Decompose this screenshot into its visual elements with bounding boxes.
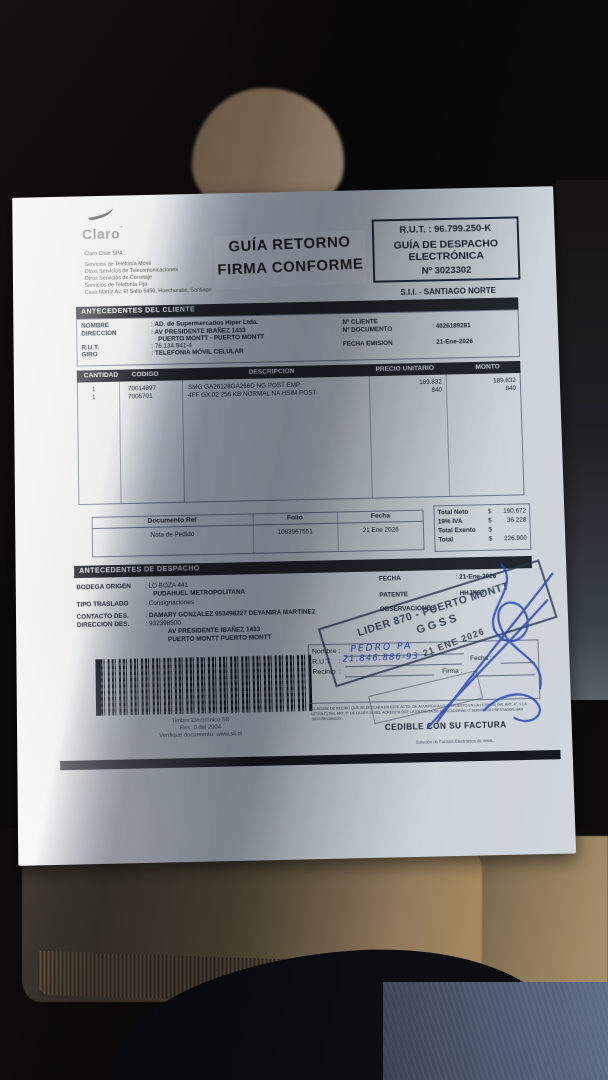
contacto-label: CONTACTO DES.: [77, 613, 129, 622]
doc-number: Nº 3023302: [375, 264, 518, 278]
col-monto: MONTO: [475, 363, 500, 371]
rut-box: R.U.T. : 96.799.250-K GUÍA DE DESPACHO E…: [372, 216, 521, 282]
n-cliente-label: Nº CLIENTE: [342, 318, 378, 326]
exento-label: Total Exento: [438, 527, 476, 535]
sii-office: S.I.I. - SANTIAGO NORTE: [383, 286, 513, 298]
n-documento-value: : 4026189281: [432, 322, 471, 330]
colon: :: [151, 343, 153, 350]
colon: :: [145, 583, 147, 590]
colon: :: [151, 329, 153, 336]
pen-mark: [87, 206, 114, 221]
direccion-des-value3: PUERTO MONTT PUERTO MONTT: [168, 634, 272, 644]
iva-label: 19% IVA: [438, 518, 463, 526]
firma-conforme-line2: FIRMA CONFORME: [215, 253, 367, 282]
client-nombre-label: NOMBRE: [81, 322, 109, 330]
document-content: Claro´ Claro Chile SPA. Servicios de Tel…: [12, 186, 576, 866]
bodega-value2: PUDAHUEL METROPOLITANA: [153, 589, 245, 598]
patente-label: PATENTE: [379, 591, 408, 599]
claro-logo-tick: ´: [120, 225, 124, 235]
claro-logo: Claro´: [82, 225, 124, 242]
row2-cantidad: 1: [92, 394, 96, 401]
fecha-emision-value: : 21-Ene-2026: [433, 338, 473, 346]
exento-sign: $: [488, 526, 492, 533]
col-descripcion: DESCRIPCION: [249, 368, 295, 377]
row1-codigo: 70014897: [128, 385, 156, 393]
total-label: Total: [438, 536, 453, 544]
footer-solution-note: Solución de Factura Electrónica de www..…: [416, 739, 496, 746]
row1-cantidad: 1: [92, 386, 96, 393]
contacto-value: : DAMARY GONZALEZ 953498227 DEYANIRA MAR…: [145, 608, 315, 619]
colon: :: [145, 620, 147, 627]
col-cantidad: CANTIDAD: [84, 372, 119, 380]
colon: :: [151, 350, 153, 357]
direccion-des-label: DIRECCION DES.: [77, 621, 129, 630]
colon: :: [432, 323, 434, 330]
company-line: Casa Matriz Av. El Salto 5450, Huechurab…: [85, 287, 212, 296]
tipo-label: TIPO TRASLADO: [76, 600, 128, 609]
claro-logo-text: Claro: [82, 226, 120, 243]
pdf417-barcode: [95, 655, 312, 716]
bodega-value1: : LO BOZA 441: [145, 582, 188, 590]
fine-print-line: SIDO RECIBIDOS.: [311, 717, 342, 722]
colon: :: [151, 321, 153, 328]
colon: :: [145, 600, 147, 607]
fecha-emision-label: FECHA EMISION: [343, 340, 393, 348]
row2-codigo: 7005701: [128, 393, 153, 401]
total-value: 226.900: [485, 535, 528, 543]
n-documento-label: Nº DOCUMENTO: [343, 326, 393, 334]
total-neto-label: Total Neto: [438, 509, 469, 517]
car-interior-photo: Claro´ Claro Chile SPA. Servicios de Tel…: [0, 0, 608, 1080]
colon: :: [145, 612, 147, 619]
bottom-separator-bar: [60, 750, 561, 770]
issuer-rut: R.U.T. : 96.799.250-K: [374, 222, 517, 236]
col-precio-unitario: PRECIO UNITARIO: [375, 365, 434, 374]
col-codigo: CODIGO: [132, 371, 159, 379]
total-neto-value: 190.672: [484, 507, 526, 515]
row2-monto: 840: [450, 385, 516, 394]
iva-value: 36.228: [484, 516, 526, 524]
colon: :: [433, 339, 435, 346]
denim-fabric: [383, 982, 608, 1080]
client-giro-label: GIRO: [82, 351, 98, 359]
tipo-value: : Consignaciones: [145, 599, 194, 607]
guia-retorno-stamp: GUÍA RETORNO FIRMA CONFORME: [214, 230, 367, 290]
bodega-label: BODEGA ORIGEN: [76, 583, 131, 592]
row2-precio: 840: [372, 387, 442, 396]
dispatch-fecha-label: FECHA: [379, 575, 401, 583]
dispatch-document: Claro´ Claro Chile SPA. Servicios de Tel…: [12, 186, 576, 866]
signature-scribble: [419, 557, 576, 729]
direccion-des-value1: : 932398500: [145, 620, 181, 628]
client-direccion-label: DIRECCION: [81, 330, 116, 338]
company-line: Claro Chile SPA.: [84, 251, 124, 258]
